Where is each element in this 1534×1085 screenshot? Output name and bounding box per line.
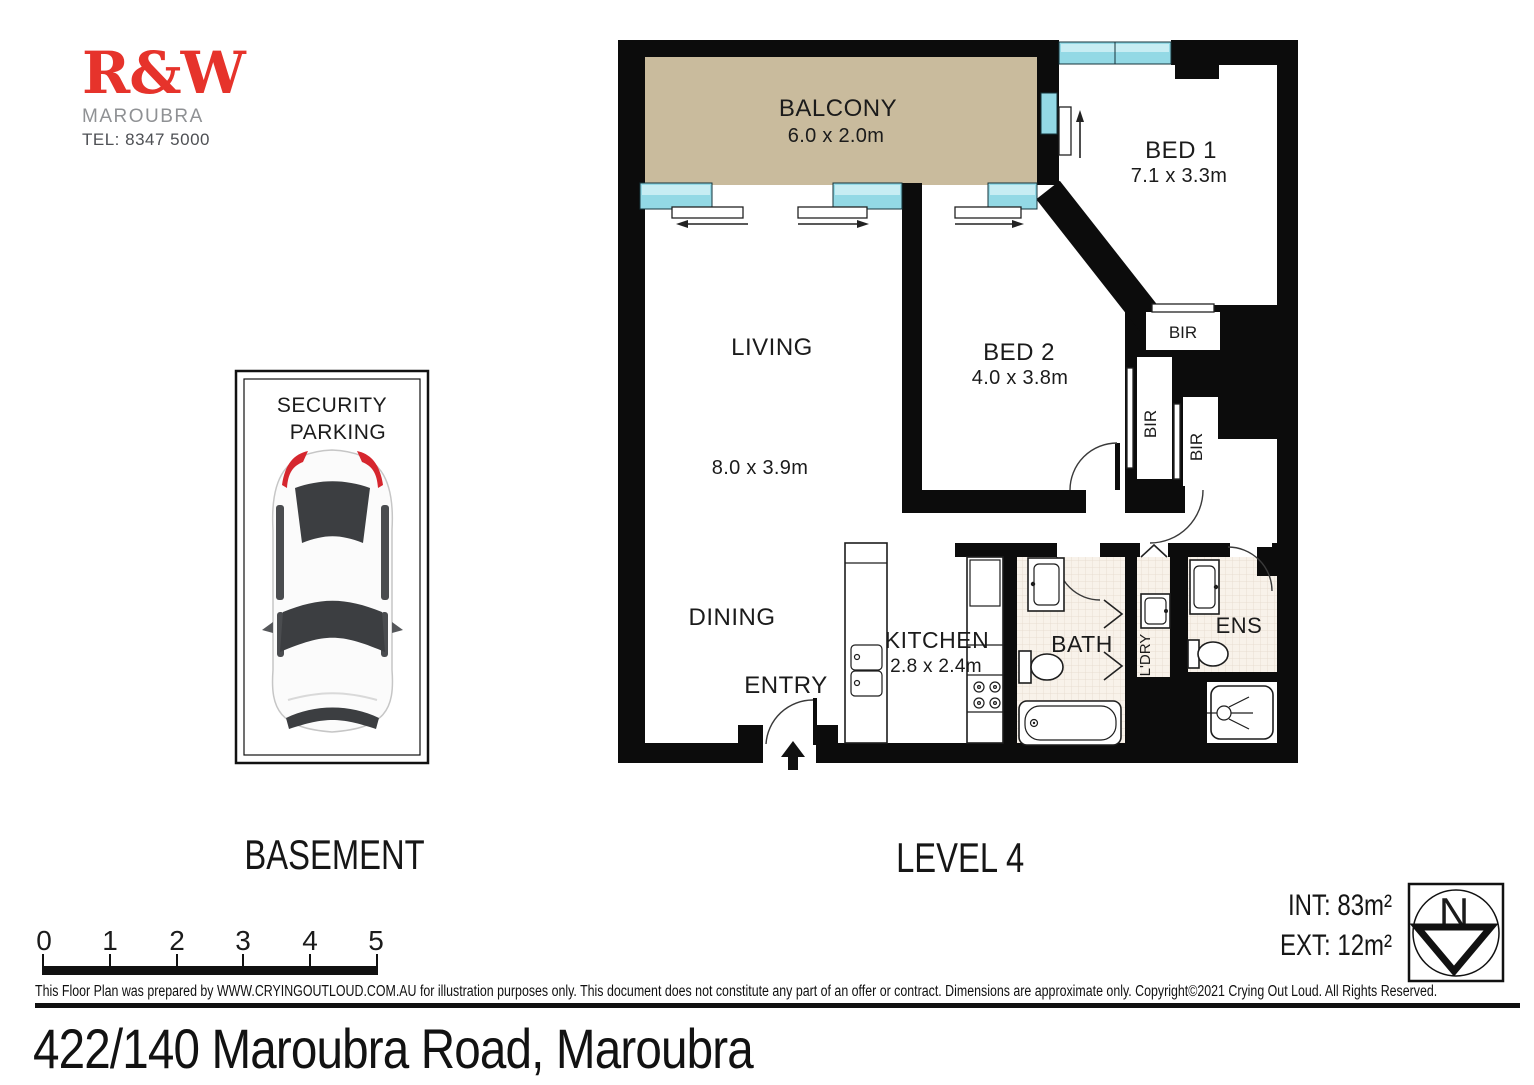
area-summary: INT: 83m² EXT: 12m² xyxy=(1252,886,1392,966)
caption-level: LEVEL 4 xyxy=(850,834,1070,882)
agency-suburb: MAROUBRA xyxy=(82,106,245,128)
toilet-icon xyxy=(1019,651,1031,683)
scale-tick-5: 5 xyxy=(368,925,384,956)
label-bed1: BED 1 xyxy=(1145,137,1217,164)
parking-diagram: SECURITY PARKING xyxy=(230,365,435,770)
scale-tick-2: 2 xyxy=(169,925,185,956)
label-bath: BATH xyxy=(1051,631,1113,657)
footer-divider xyxy=(35,1003,1520,1008)
entry-pillars xyxy=(738,698,838,745)
area-ext: EXT: 12m² xyxy=(1280,926,1392,966)
floor-plan: BALCONY 6.0 x 2.0m BED 1 7.1 x 3.3m BED … xyxy=(615,25,1305,770)
dims-bed2: 4.0 x 3.8m xyxy=(972,367,1068,389)
scale-tick-0: 0 xyxy=(36,925,52,956)
dims-kitchen: 2.8 x 2.4m xyxy=(890,656,982,677)
label-ldry: L'DRY xyxy=(1137,634,1154,677)
ldry-fixtures xyxy=(1141,594,1170,628)
dims-living: 8.0 x 3.9m xyxy=(712,457,808,479)
scale-bar: 0 1 2 3 4 5 xyxy=(30,920,390,982)
caption-basement: BASEMENT xyxy=(205,831,465,879)
address: 422/140 Maroubra Road, Maroubra xyxy=(33,1016,880,1081)
entry-door-arc xyxy=(766,700,813,744)
label-bir-3: BIR xyxy=(1187,433,1206,461)
dims-bed1: 7.1 x 3.3m xyxy=(1131,165,1227,187)
label-bir-2: BIR xyxy=(1141,410,1160,438)
label-entry: ENTRY xyxy=(744,672,827,699)
floorplan-page: R&W MAROUBRA TEL: 8347 5000 xyxy=(0,0,1534,1085)
disclaimer: This Floor Plan was prepared by WWW.CRYI… xyxy=(35,983,1534,1001)
label-balcony: BALCONY xyxy=(779,95,897,122)
label-ens: ENS xyxy=(1216,613,1263,638)
ldry-door-icon xyxy=(1141,545,1167,557)
agency-phone: TEL: 8347 5000 xyxy=(82,130,245,150)
agency-logo-text: R&W xyxy=(82,44,245,102)
north-compass: N xyxy=(1403,880,1511,988)
area-int: INT: 83m² xyxy=(1288,886,1392,926)
parking-label-2: PARKING xyxy=(290,421,386,444)
label-living: LIVING xyxy=(731,334,813,361)
label-bir-1: BIR xyxy=(1169,323,1197,342)
car-top-view xyxy=(262,450,403,732)
scale-tick-4: 4 xyxy=(302,925,318,956)
balcony-windows xyxy=(640,183,1037,228)
agency-logo: R&W MAROUBRA TEL: 8347 5000 xyxy=(82,44,245,150)
dims-balcony: 6.0 x 2.0m xyxy=(788,125,884,147)
label-bed2: BED 2 xyxy=(983,339,1055,366)
label-dining: DINING xyxy=(689,604,776,631)
scale-tick-1: 1 xyxy=(102,925,118,956)
label-kitchen: KITCHEN xyxy=(885,627,989,653)
parking-label-1: SECURITY xyxy=(277,394,387,417)
scale-tick-3: 3 xyxy=(235,925,251,956)
